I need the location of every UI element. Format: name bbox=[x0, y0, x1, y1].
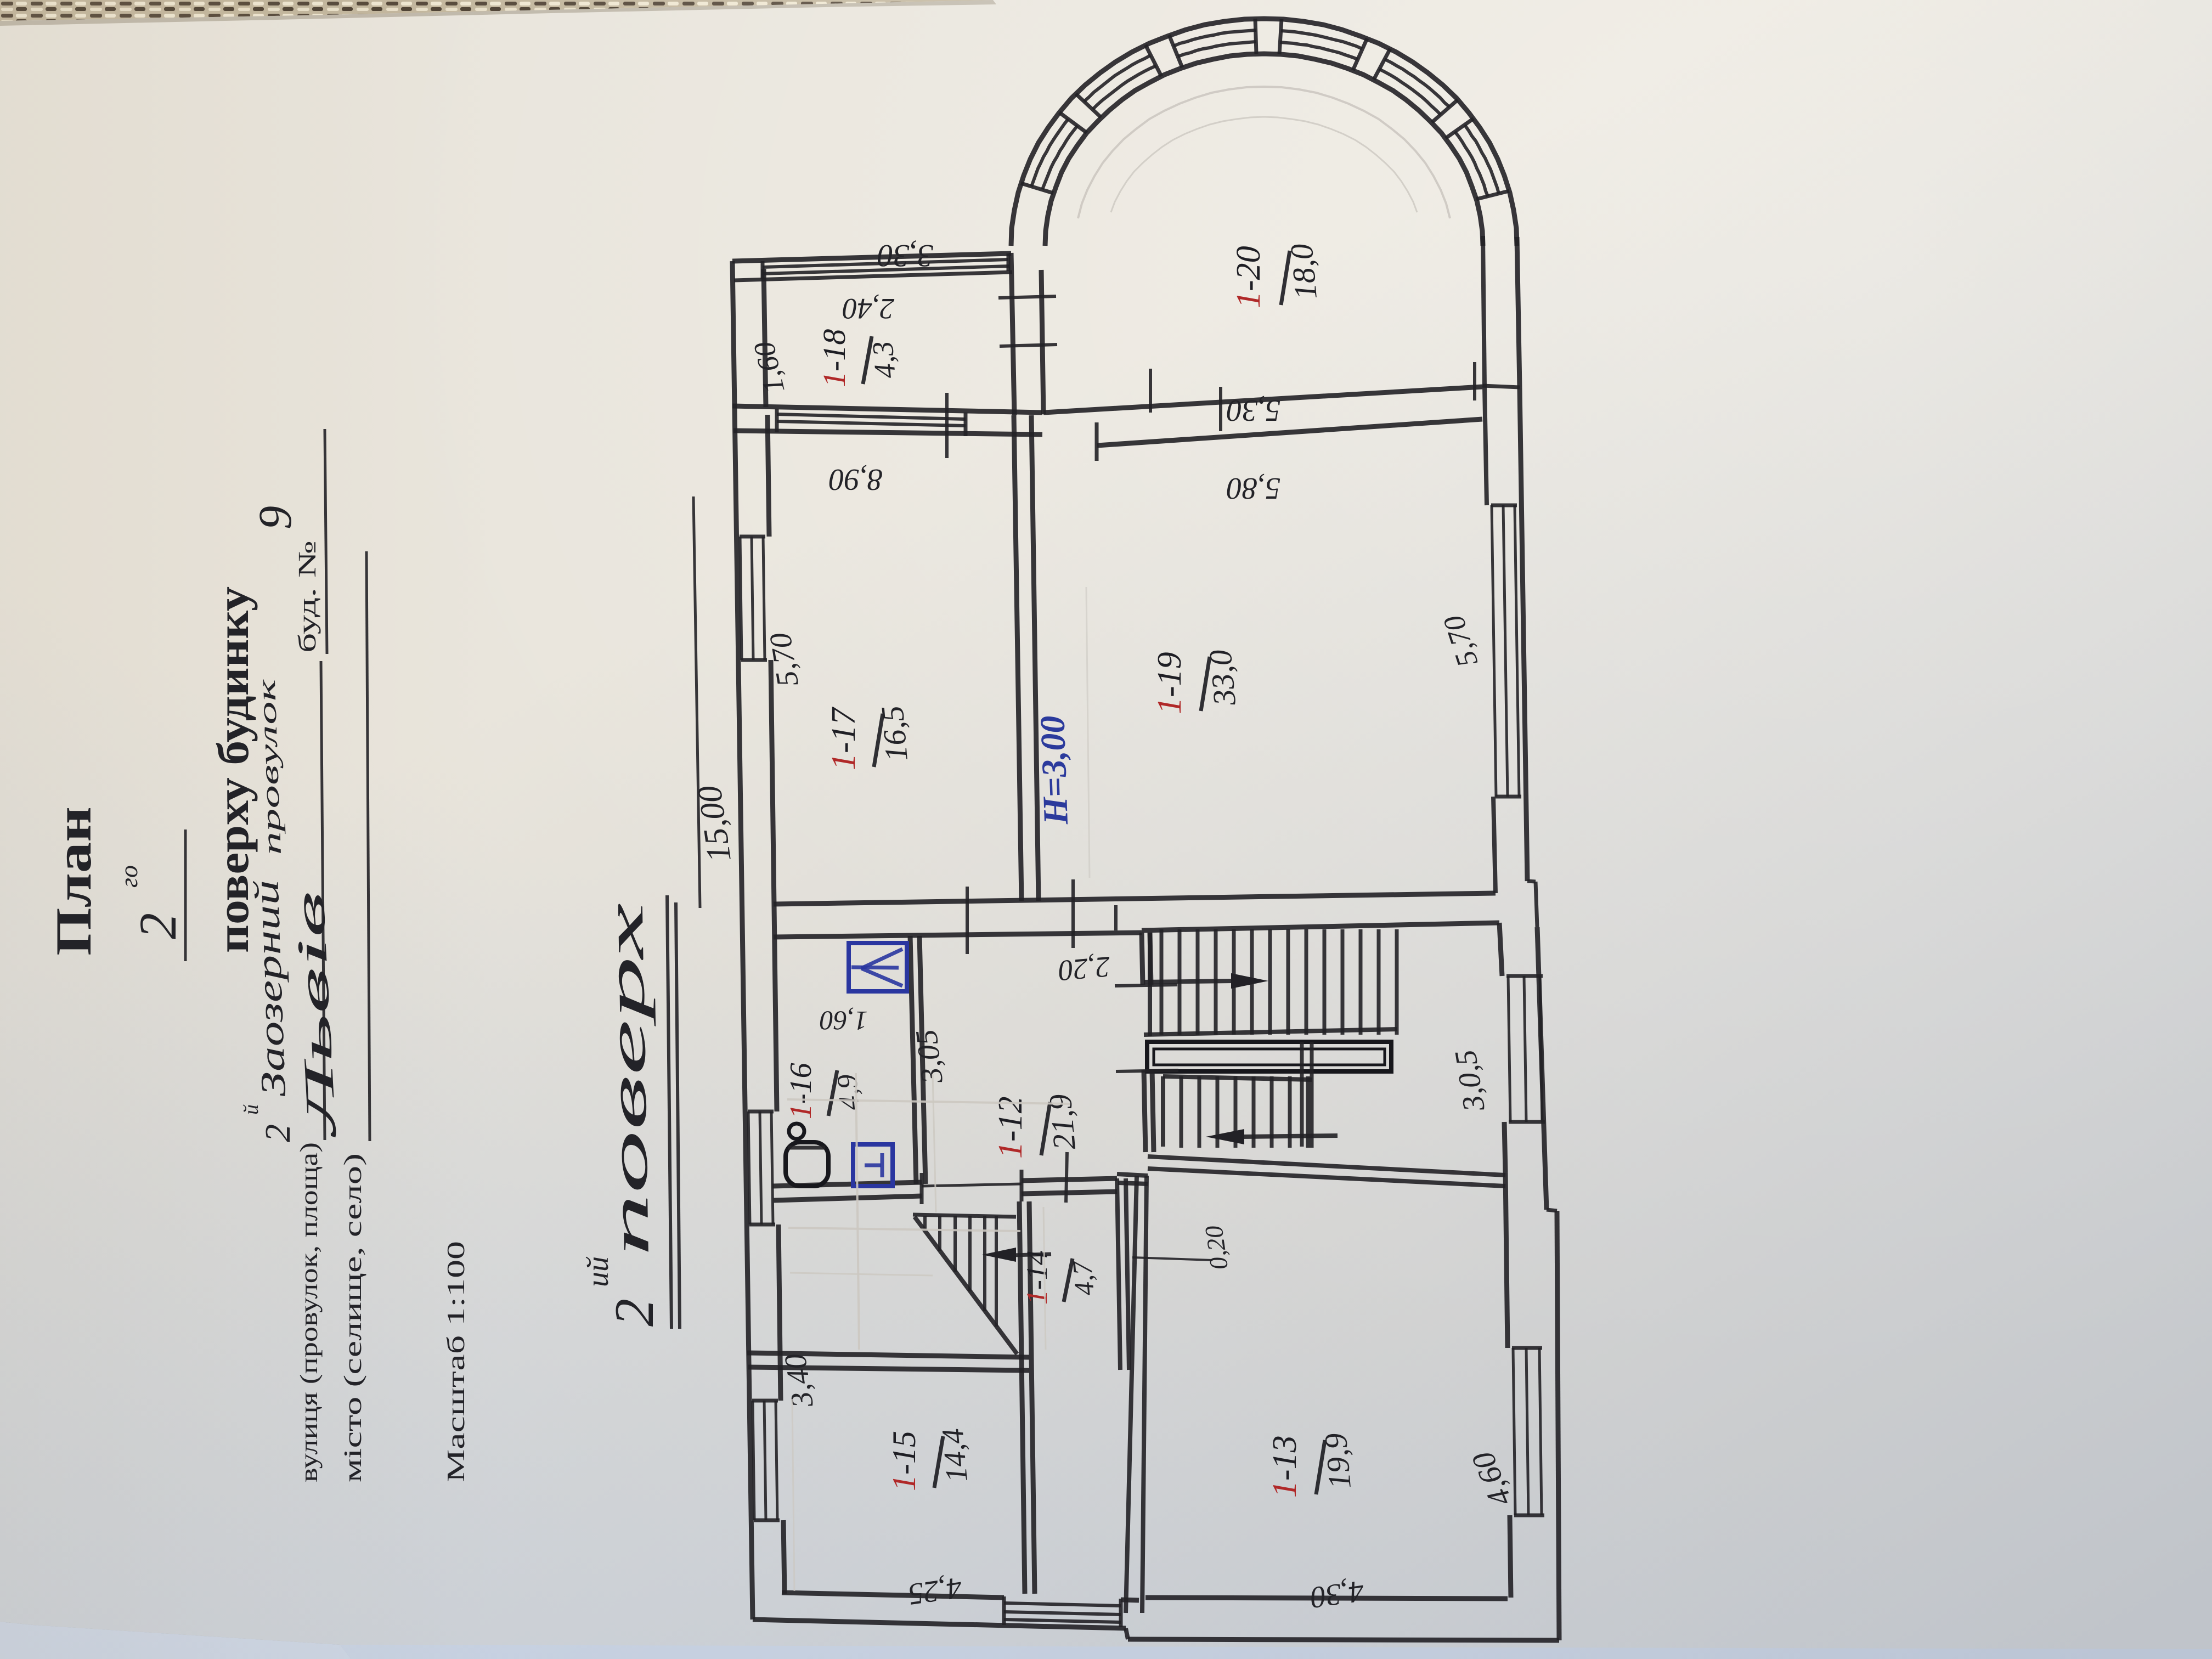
svg-text:План: План bbox=[46, 806, 101, 956]
svg-text:вулиця (провулок, площа): вулиця (провулок, площа) bbox=[295, 1142, 323, 1482]
svg-text:1-12: 1-12 bbox=[992, 1096, 1029, 1159]
svg-text:1-20: 1-20 bbox=[1230, 246, 1267, 308]
svg-text:1-15: 1-15 bbox=[886, 1431, 922, 1491]
svg-text:2: 2 bbox=[258, 1124, 298, 1142]
svg-text:14,4: 14,4 bbox=[936, 1427, 974, 1483]
svg-text:й: й bbox=[240, 1104, 263, 1115]
svg-text:Н=3,00: Н=3,00 bbox=[1032, 715, 1075, 826]
svg-text:1,60: 1,60 bbox=[820, 1006, 868, 1036]
svg-text:3,30: 3,30 bbox=[877, 238, 934, 274]
svg-text:3,05: 3,05 bbox=[909, 1028, 950, 1086]
svg-text:8,90: 8,90 bbox=[829, 462, 883, 496]
svg-text:1-19: 1-19 bbox=[1151, 652, 1188, 714]
svg-text:1-17: 1-17 bbox=[825, 706, 862, 770]
svg-text:1-16: 1-16 bbox=[784, 1063, 818, 1119]
svg-text:2,20: 2,20 bbox=[1057, 950, 1111, 988]
svg-text:9: 9 bbox=[249, 506, 301, 529]
svg-text:1-14: 1-14 bbox=[1020, 1250, 1053, 1305]
svg-text:19,9: 19,9 bbox=[1317, 1432, 1358, 1491]
svg-text:1-18: 1-18 bbox=[816, 329, 852, 387]
svg-text:1-13: 1-13 bbox=[1266, 1435, 1304, 1498]
svg-text:4,9: 4,9 bbox=[832, 1073, 866, 1111]
svg-text:місто (селище, село): місто (селище, село) bbox=[338, 1153, 366, 1482]
svg-text:4,7: 4,7 bbox=[1066, 1259, 1100, 1297]
svg-text:ий: ий bbox=[581, 1256, 615, 1287]
svg-text:2,40: 2,40 bbox=[843, 292, 895, 325]
svg-text:буд. №: буд. № bbox=[293, 540, 321, 653]
svg-text:го: го bbox=[115, 865, 143, 888]
svg-text:33,0: 33,0 bbox=[1202, 648, 1243, 708]
svg-text:2: 2 bbox=[603, 1299, 665, 1327]
svg-text:2: 2 bbox=[128, 913, 187, 939]
svg-text:21,9: 21,9 bbox=[1042, 1093, 1082, 1152]
svg-text:Заозерний: Заозерний bbox=[246, 879, 293, 1097]
svg-text:5,30: 5,30 bbox=[1227, 393, 1280, 427]
svg-text:16,5: 16,5 bbox=[874, 704, 915, 763]
svg-text:Масштаб 1:100: Масштаб 1:100 bbox=[442, 1241, 470, 1482]
svg-text:18,0: 18,0 bbox=[1283, 242, 1324, 301]
svg-text:5,80: 5,80 bbox=[1227, 471, 1280, 505]
svg-text:4,3: 4,3 bbox=[866, 340, 902, 380]
svg-text:поверх: поверх bbox=[595, 902, 660, 1257]
